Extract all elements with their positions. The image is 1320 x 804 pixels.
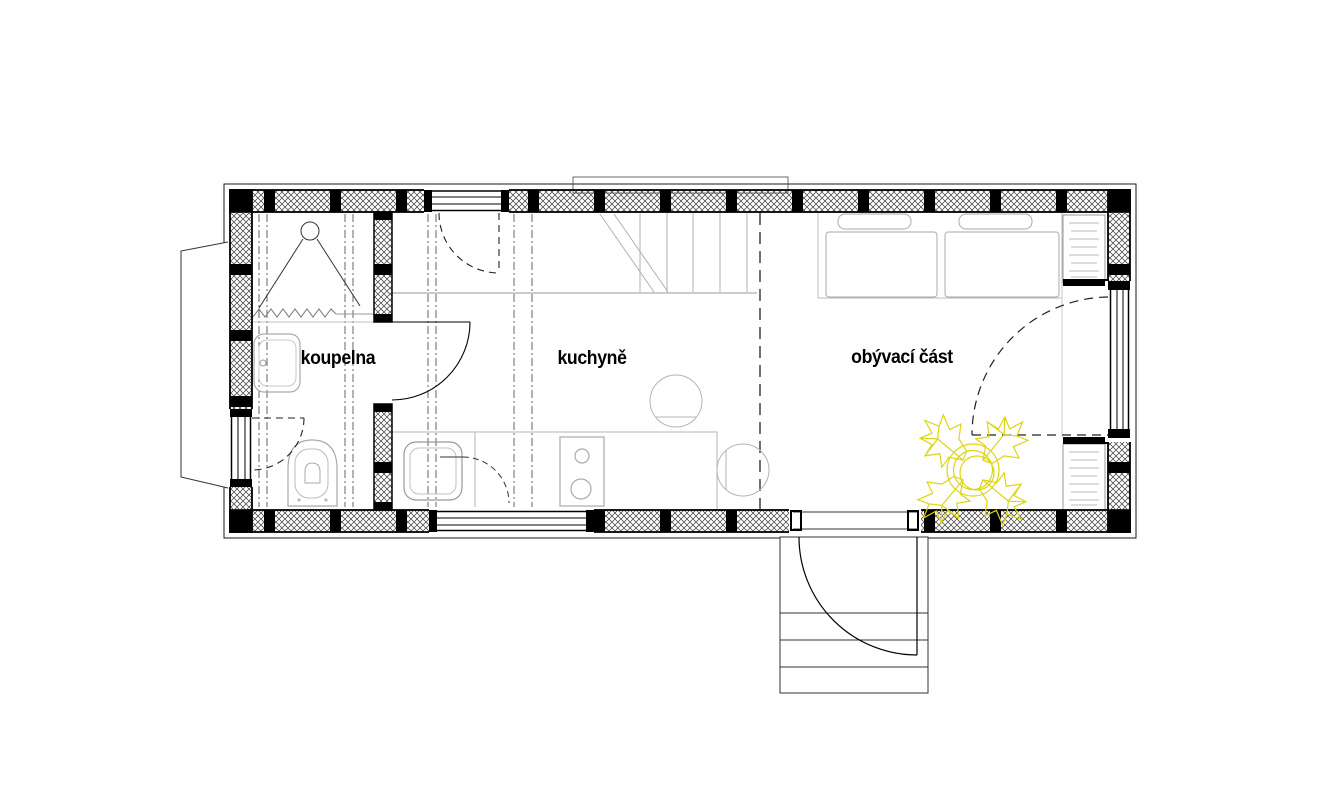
french-window-swing bbox=[972, 297, 1108, 435]
stove bbox=[560, 437, 604, 506]
chair bbox=[717, 444, 769, 496]
partition-wall-bathroom-lower bbox=[374, 404, 392, 510]
toilet bbox=[288, 440, 337, 506]
trailer-drawbar bbox=[181, 242, 228, 488]
floor-plan-drawing bbox=[0, 0, 1320, 804]
shelf-unit-top bbox=[1063, 215, 1105, 283]
shower-curtain bbox=[253, 309, 374, 322]
washbasin bbox=[254, 334, 300, 392]
bed bbox=[945, 214, 1059, 297]
window-top bbox=[424, 187, 509, 214]
bed-platform bbox=[818, 212, 1062, 298]
bed bbox=[826, 214, 937, 297]
kitchen-counter bbox=[392, 432, 717, 510]
window-bottom-kitchen bbox=[429, 507, 594, 534]
partition-wall-bathroom bbox=[374, 212, 392, 322]
entrance-steps bbox=[780, 537, 928, 693]
french-window-right bbox=[1105, 281, 1132, 442]
exterior-wall-bottom bbox=[230, 510, 1130, 532]
kitchen-sink bbox=[404, 442, 462, 500]
room-label-koupelna: koupelna bbox=[301, 348, 371, 370]
chair bbox=[650, 375, 702, 427]
room-label-obyvaci-cast: obývací část bbox=[847, 347, 957, 369]
exterior-wall-top bbox=[230, 190, 1130, 212]
floor-plan-page: koupelna kuchyně obývací část bbox=[0, 0, 1320, 804]
window-swing-left bbox=[252, 418, 304, 470]
window-swing-top bbox=[439, 213, 499, 273]
entrance-doorway bbox=[789, 507, 921, 534]
loft-stairs bbox=[600, 213, 747, 292]
room-label-kuchyne: kuchyně bbox=[556, 348, 629, 370]
shelf-unit-bottom bbox=[1063, 444, 1105, 510]
bathroom-door-swing bbox=[392, 322, 470, 400]
window-left-bathroom bbox=[227, 409, 254, 487]
